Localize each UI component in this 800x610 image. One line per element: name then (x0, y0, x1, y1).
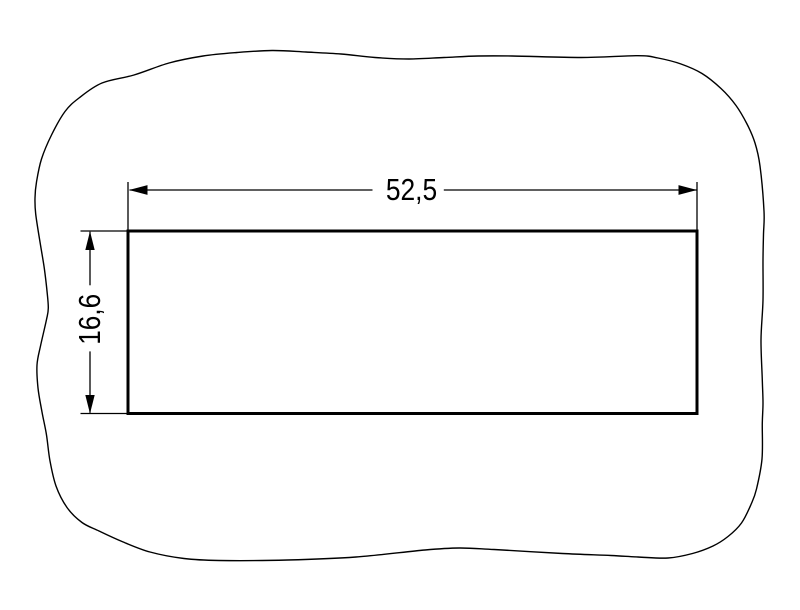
svg-text:52,5: 52,5 (386, 173, 437, 207)
svg-text:16,6: 16,6 (73, 294, 108, 345)
